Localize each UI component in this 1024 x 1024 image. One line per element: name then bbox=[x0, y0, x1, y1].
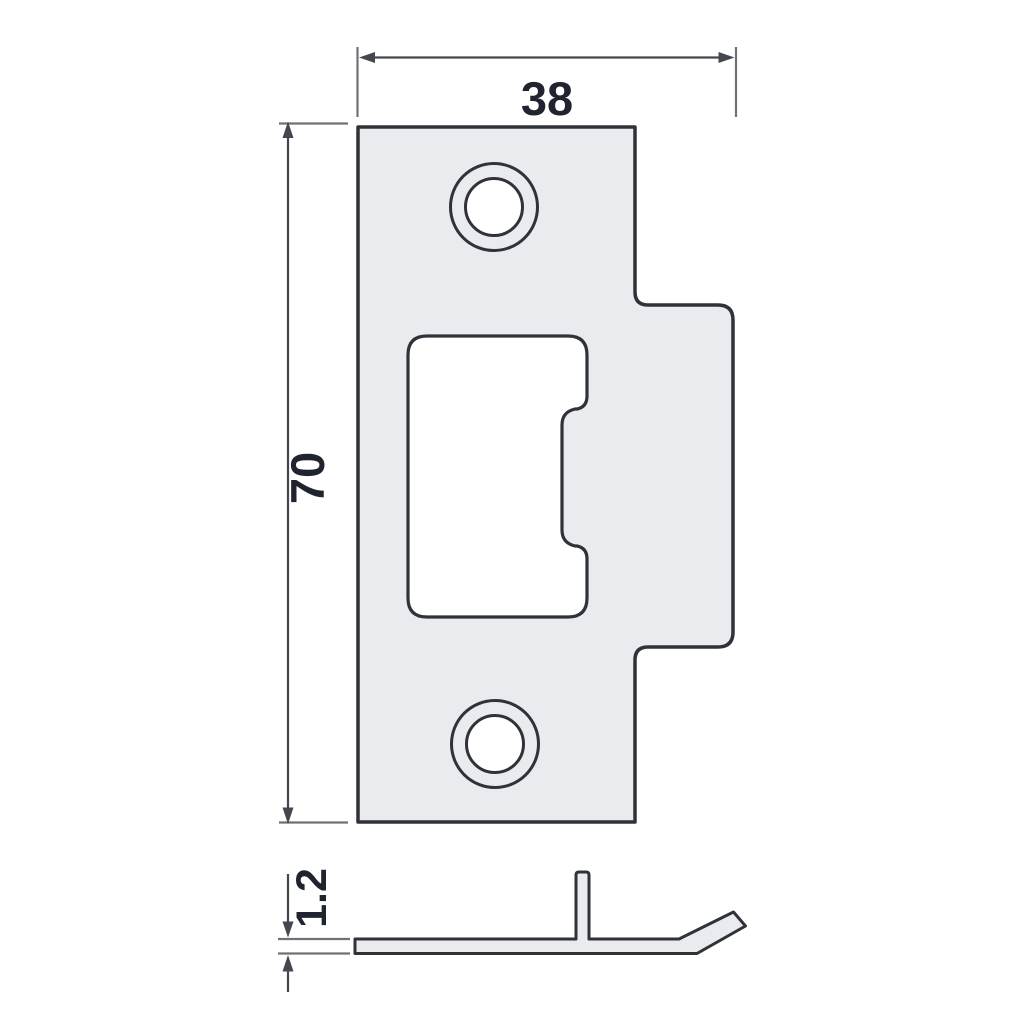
technical-drawing-canvas: 38 70 1.2 bbox=[0, 0, 1024, 1024]
side-view-profile bbox=[355, 872, 746, 954]
side-view bbox=[355, 872, 746, 954]
thickness-dimension: 1.2 bbox=[278, 868, 350, 992]
height-dimension-label: 70 bbox=[281, 452, 334, 504]
arrowhead-left bbox=[359, 52, 375, 63]
width-dimension: 38 bbox=[358, 47, 737, 125]
height-dimension: 70 bbox=[279, 122, 348, 825]
screw-hole-top bbox=[466, 179, 523, 236]
front-view bbox=[358, 127, 733, 822]
arrowhead-thickness-up bbox=[283, 955, 294, 972]
thickness-dimension-label: 1.2 bbox=[288, 868, 336, 928]
arrowhead-right bbox=[719, 52, 735, 63]
front-view-latch-cutout bbox=[408, 336, 587, 617]
strike-plate-drawing: 38 70 1.2 bbox=[0, 0, 1024, 1024]
width-dimension-label: 38 bbox=[521, 72, 573, 125]
screw-hole-bottom bbox=[467, 716, 524, 773]
